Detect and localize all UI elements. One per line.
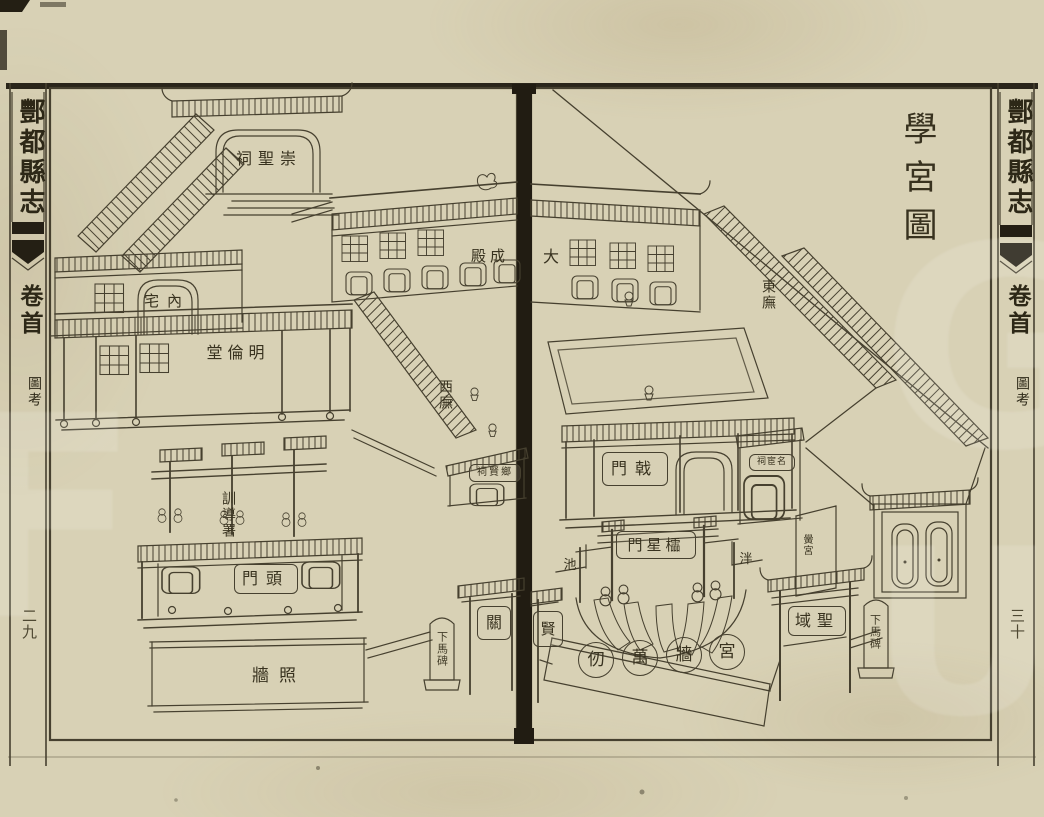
book-gutter bbox=[512, 84, 536, 744]
engraving-artwork bbox=[0, 0, 1044, 817]
book-spread: G F U 酆都縣志 卷首 圖考 二九 酆都縣志 卷首 圖考 三十 祠聖崇宅內堂… bbox=[0, 0, 1044, 817]
right-margin-volume: 卷首 bbox=[1003, 284, 1029, 350]
left-margin-section: 圖考 bbox=[23, 376, 41, 416]
right-margin-page-number: 三十 bbox=[1002, 608, 1024, 648]
right-margin-section: 圖考 bbox=[1011, 376, 1029, 416]
right-page-drawing bbox=[531, 90, 988, 726]
left-margin-book-title: 酆都縣志 bbox=[13, 98, 43, 222]
left-margin-page-number: 二九 bbox=[14, 608, 36, 648]
right-margin-book-title: 酆都縣志 bbox=[1001, 98, 1031, 222]
left-page-drawing bbox=[50, 83, 528, 712]
left-margin-volume: 卷首 bbox=[15, 284, 41, 350]
